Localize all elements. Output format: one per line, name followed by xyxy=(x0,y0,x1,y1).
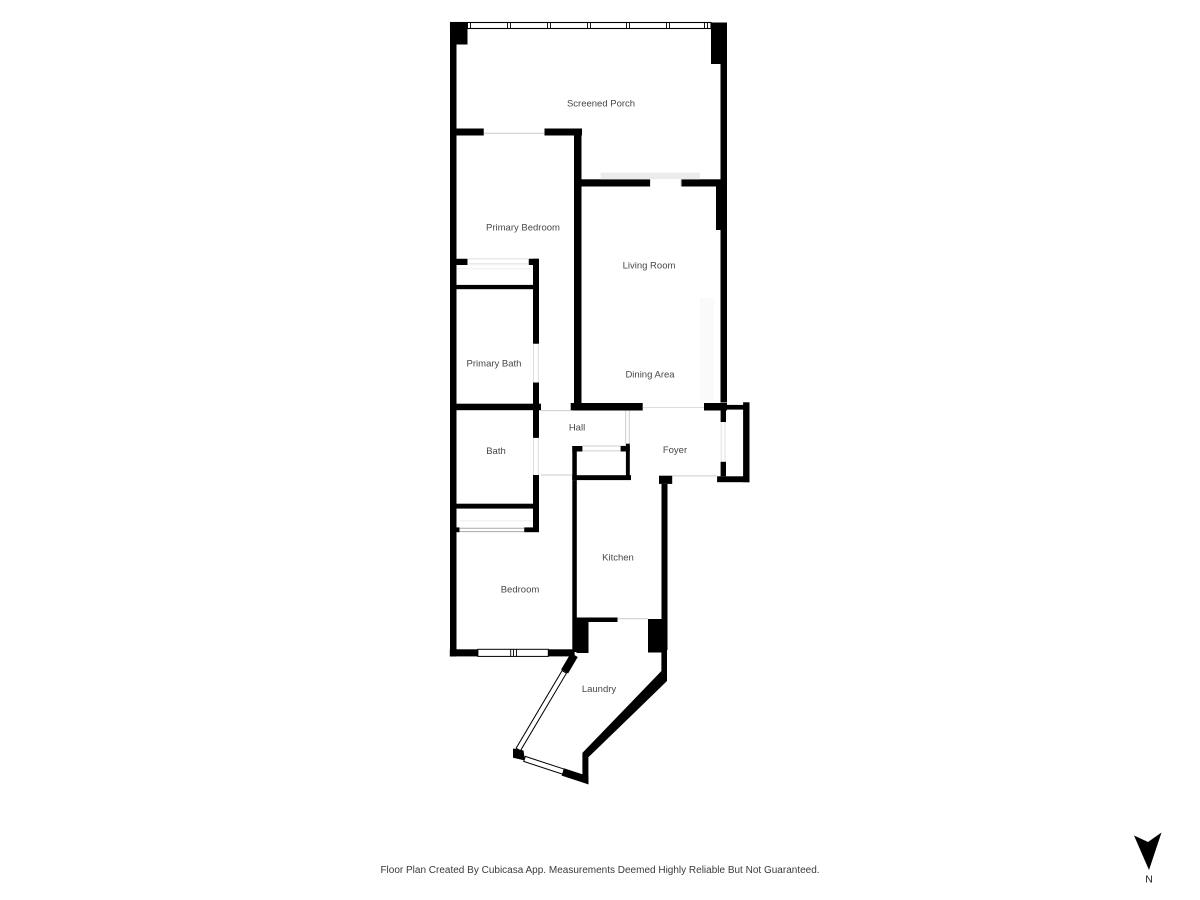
svg-text:Primary Bath: Primary Bath xyxy=(467,359,522,370)
svg-text:Bath: Bath xyxy=(486,446,506,457)
svg-text:N: N xyxy=(1145,874,1153,886)
svg-text:Kitchen: Kitchen xyxy=(602,553,634,564)
svg-text:Foyer: Foyer xyxy=(663,445,687,456)
svg-text:Primary Bedroom: Primary Bedroom xyxy=(486,223,560,234)
svg-text:Bedroom: Bedroom xyxy=(501,585,540,596)
svg-text:Laundry: Laundry xyxy=(582,684,617,695)
svg-text:Hall: Hall xyxy=(569,423,585,434)
svg-text:Floor Plan Created By Cubicasa: Floor Plan Created By Cubicasa App. Meas… xyxy=(380,865,819,876)
svg-text:Dining Area: Dining Area xyxy=(625,370,675,381)
svg-text:Screened Porch: Screened Porch xyxy=(567,99,635,110)
svg-text:Living Room: Living Room xyxy=(623,261,676,272)
